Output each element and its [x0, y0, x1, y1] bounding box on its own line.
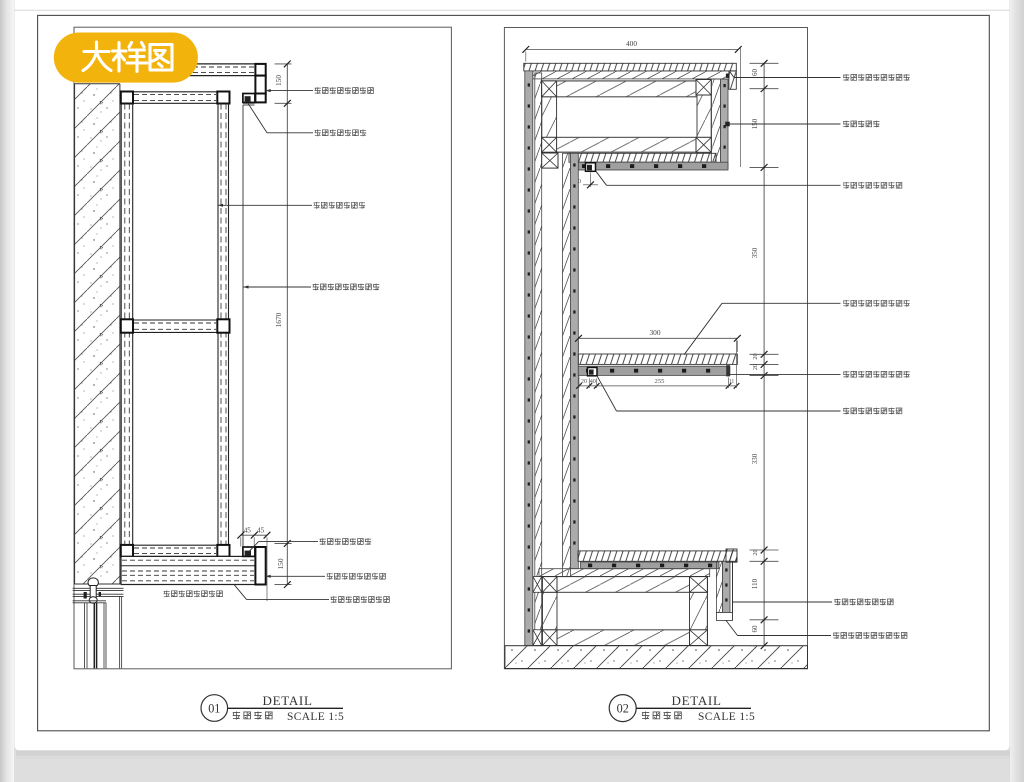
svg-text:02: 02 [617, 702, 629, 716]
svg-text:60: 60 [751, 625, 759, 633]
svg-text:350: 350 [751, 247, 759, 258]
svg-text:20: 20 [752, 549, 759, 555]
svg-text:300: 300 [649, 328, 660, 337]
svg-text:SCALE 1:5: SCALE 1:5 [287, 711, 344, 723]
svg-text:20: 20 [581, 378, 587, 385]
svg-text:20: 20 [752, 353, 759, 359]
svg-text:40: 40 [590, 378, 596, 385]
svg-text:60: 60 [751, 69, 759, 77]
svg-text:SCALE 1:5: SCALE 1:5 [698, 711, 755, 723]
svg-text:400: 400 [626, 39, 637, 48]
svg-text:330: 330 [751, 453, 759, 464]
svg-text:01: 01 [208, 702, 220, 716]
svg-text:11: 11 [729, 379, 735, 385]
svg-text:1670: 1670 [274, 312, 283, 327]
svg-text:20: 20 [752, 364, 759, 370]
svg-text:255: 255 [655, 378, 666, 385]
svg-text:45: 45 [257, 527, 265, 535]
svg-text:45: 45 [244, 527, 252, 535]
svg-text:150: 150 [274, 75, 283, 86]
svg-text:DETAIL: DETAIL [263, 693, 313, 708]
svg-text:DETAIL: DETAIL [672, 693, 722, 708]
svg-text:110: 110 [751, 578, 759, 589]
svg-text:150: 150 [276, 558, 285, 569]
